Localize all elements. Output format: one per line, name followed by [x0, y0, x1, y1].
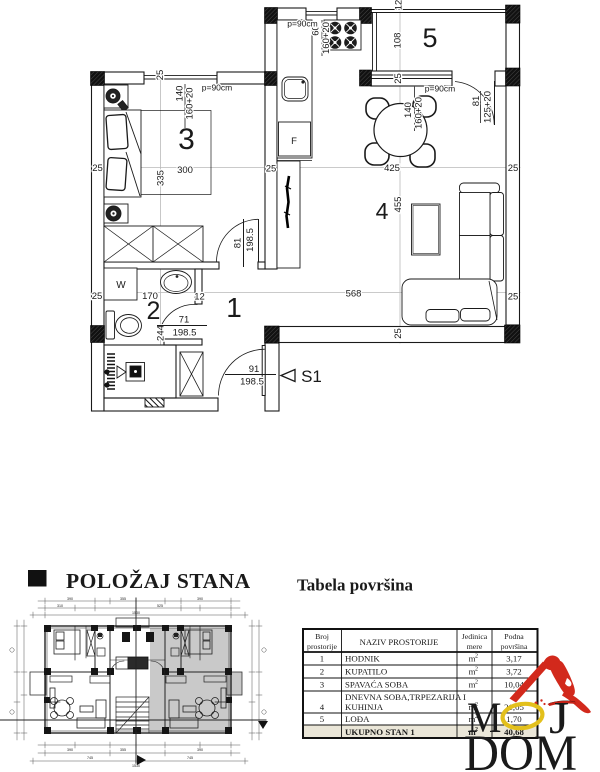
svg-text:355: 355	[120, 748, 126, 752]
svg-text:160+20: 160+20	[321, 22, 332, 54]
svg-text:p=90cm: p=90cm	[202, 83, 232, 93]
svg-text:prostorije: prostorije	[307, 642, 337, 651]
svg-text:25: 25	[508, 292, 519, 303]
svg-text:3,72: 3,72	[506, 667, 521, 677]
svg-text:p=90cm: p=90cm	[287, 19, 317, 29]
svg-text:125+20: 125+20	[483, 91, 494, 123]
svg-text:390: 390	[197, 748, 203, 752]
svg-text:S1: S1	[301, 367, 322, 386]
svg-text:310: 310	[57, 604, 63, 608]
svg-text:5: 5	[422, 23, 437, 53]
svg-text:198.5: 198.5	[173, 328, 197, 339]
svg-text:2: 2	[475, 680, 478, 686]
svg-text:UKUPNO STAN 1: UKUPNO STAN 1	[345, 727, 415, 737]
svg-text:4: 4	[376, 198, 389, 224]
svg-text:3: 3	[178, 123, 195, 156]
svg-text:HODNIK: HODNIK	[345, 654, 380, 664]
svg-text:Tabela površina: Tabela površina	[297, 576, 414, 595]
svg-text:25: 25	[92, 163, 103, 174]
svg-text:745: 745	[87, 756, 93, 760]
svg-text:SPAVAĆA SOBA: SPAVAĆA SOBA	[345, 680, 409, 690]
svg-text:NAZIV PROSTORIJE: NAZIV PROSTORIJE	[360, 637, 439, 647]
svg-text:198.5: 198.5	[245, 228, 256, 252]
svg-text:140: 140	[403, 102, 414, 118]
svg-text:568: 568	[346, 289, 362, 300]
svg-text:745: 745	[187, 756, 193, 760]
svg-text:1530: 1530	[132, 764, 140, 768]
svg-text:2: 2	[147, 297, 161, 325]
svg-text:525: 525	[157, 604, 163, 608]
svg-text:244: 244	[156, 325, 167, 341]
svg-text:POLOŽAJ STANA: POLOŽAJ STANA	[66, 569, 251, 593]
svg-text:DOM: DOM	[464, 725, 577, 772]
svg-text:2: 2	[475, 654, 478, 660]
svg-text:5: 5	[320, 714, 325, 724]
svg-text:198.5: 198.5	[240, 377, 264, 388]
svg-text:W: W	[116, 280, 126, 291]
svg-text:390: 390	[67, 597, 73, 601]
svg-text:2: 2	[320, 667, 324, 677]
svg-text:81: 81	[233, 238, 244, 249]
svg-text:160+20: 160+20	[414, 97, 425, 129]
svg-text:25: 25	[508, 163, 519, 174]
svg-text:390: 390	[197, 597, 203, 601]
svg-text:DNEVNA SOBA,TRPEZARIJA I: DNEVNA SOBA,TRPEZARIJA I	[345, 692, 466, 702]
svg-text:300: 300	[177, 165, 193, 176]
svg-text:160+20: 160+20	[185, 88, 196, 120]
svg-text:mere: mere	[467, 642, 483, 651]
svg-text:12: 12	[194, 292, 205, 303]
svg-text:p=90cm: p=90cm	[425, 84, 455, 94]
svg-text:Podna: Podna	[504, 632, 524, 641]
svg-text:455: 455	[393, 197, 404, 213]
svg-text:2: 2	[475, 667, 478, 673]
svg-text:425: 425	[384, 163, 400, 174]
svg-text:12: 12	[394, 0, 405, 10]
svg-text:25: 25	[155, 70, 166, 81]
svg-text:390: 390	[67, 748, 73, 752]
svg-text:71: 71	[179, 315, 190, 326]
svg-text:25: 25	[393, 73, 404, 84]
svg-text:LOĐA: LOĐA	[345, 714, 370, 724]
svg-text:3,17: 3,17	[506, 654, 522, 664]
svg-text:4: 4	[320, 702, 325, 712]
svg-text:F: F	[291, 136, 297, 147]
svg-text:91: 91	[249, 364, 260, 375]
svg-text:25: 25	[266, 164, 277, 175]
svg-text:81: 81	[471, 96, 482, 107]
svg-text:355: 355	[120, 597, 126, 601]
svg-text:Broj: Broj	[315, 632, 329, 641]
svg-text:3: 3	[320, 680, 325, 690]
svg-text:površina: površina	[501, 642, 528, 651]
svg-text:25: 25	[92, 291, 103, 302]
svg-text:1: 1	[320, 654, 324, 664]
svg-text:1: 1	[226, 292, 242, 323]
svg-text:108: 108	[393, 33, 404, 49]
svg-text:KUHINJA: KUHINJA	[345, 702, 384, 712]
svg-text:1,70: 1,70	[506, 714, 522, 724]
svg-text:25: 25	[393, 328, 404, 339]
svg-text:335: 335	[156, 170, 167, 186]
svg-text:KUPATILO: KUPATILO	[345, 667, 387, 677]
svg-text:Jedinica: Jedinica	[462, 632, 488, 641]
